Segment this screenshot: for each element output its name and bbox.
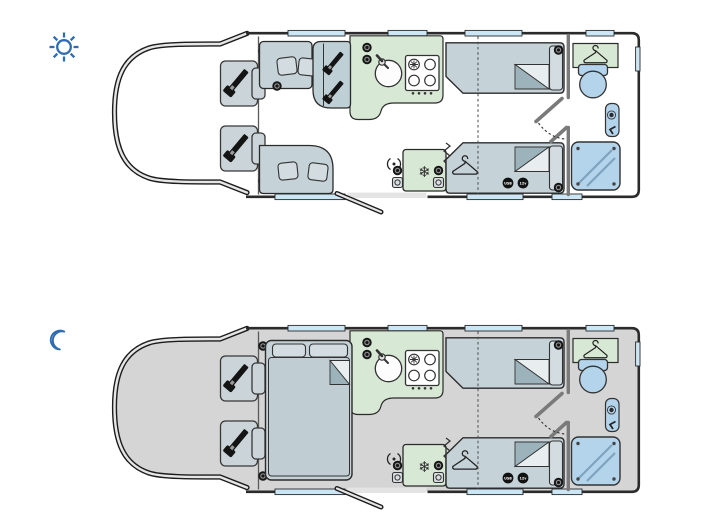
bed-pillow	[273, 344, 306, 357]
bed-pillow	[310, 344, 348, 357]
travel-seat-bench	[313, 42, 351, 109]
night-front-bed	[266, 341, 353, 481]
night-floorplan	[49, 325, 640, 507]
cushion-icon	[308, 162, 329, 181]
floorplan-canvas: ❄	[0, 0, 710, 527]
cushion-icon	[278, 162, 299, 181]
floorplan-page: ❄	[0, 0, 710, 527]
cushion-icon	[277, 56, 298, 75]
sun-icon	[50, 33, 79, 62]
speaker-icon	[272, 81, 281, 90]
moon-icon	[49, 329, 65, 350]
day-floorplan	[50, 30, 641, 212]
